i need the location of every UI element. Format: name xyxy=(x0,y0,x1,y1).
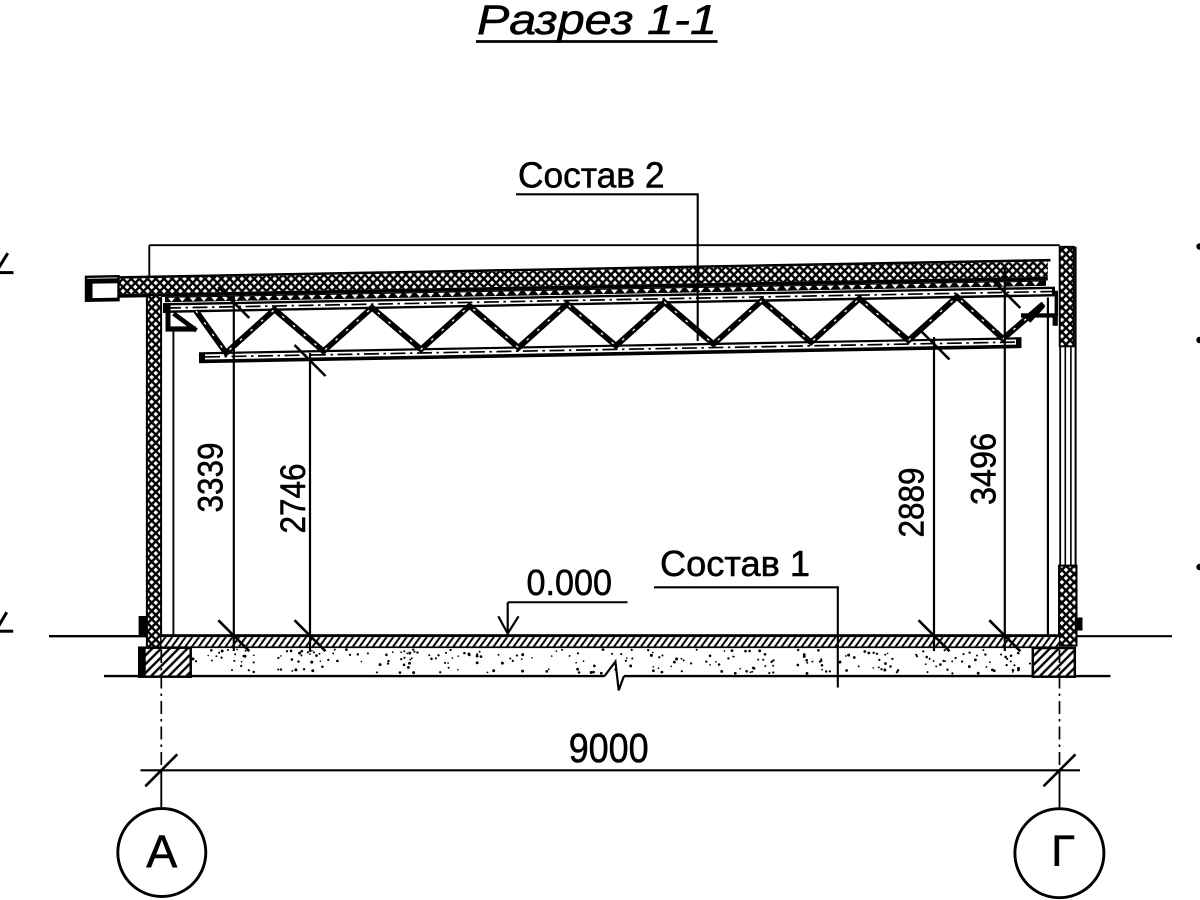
svg-text:0.000: 0.000 xyxy=(527,562,613,603)
svg-text:3496: 3496 xyxy=(965,433,1004,505)
svg-text:Состав 1: Состав 1 xyxy=(660,543,810,584)
svg-text:3339: 3339 xyxy=(192,443,231,513)
svg-text:Разрез 1-1: Разрез 1-1 xyxy=(477,0,717,43)
svg-text:9000: 9000 xyxy=(569,725,649,771)
svg-text:А: А xyxy=(146,826,177,878)
svg-text:Г: Г xyxy=(1051,828,1075,876)
svg-text:2889: 2889 xyxy=(893,468,932,538)
svg-text:Состав 2: Состав 2 xyxy=(518,155,665,196)
svg-text:2746: 2746 xyxy=(274,464,313,534)
